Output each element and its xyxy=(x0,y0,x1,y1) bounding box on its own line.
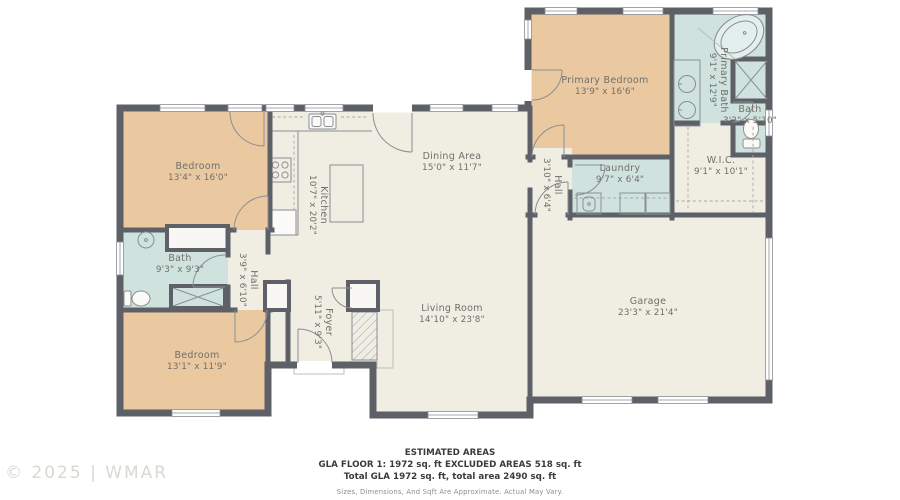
room-label-laundry: Laundry9'7" x 6'4" xyxy=(596,163,644,187)
room-label-primary-bath: Primary Bath9'1" x 12'9" xyxy=(705,47,729,112)
front-door-opening xyxy=(297,361,332,369)
room-label-kitchen: Kitchen10'7" x 20'2" xyxy=(305,175,329,235)
room-label-bedroom-upper: Bedroom13'4" x 16'0" xyxy=(168,161,228,185)
room-label-primary-bedroom: Primary Bedroom13'9" x 16'6" xyxy=(561,75,648,99)
window xyxy=(305,105,343,112)
room-label-hall-right: Hall3'10" x 6'4" xyxy=(539,158,563,212)
garage-window-band xyxy=(766,238,773,380)
room-label-garage: Garage23'3" x 21'4" xyxy=(618,296,678,320)
room-label-bedroom-lower: Bedroom13'1" x 11'9" xyxy=(167,350,227,374)
window xyxy=(713,8,758,15)
room-label-hall-left: Hall3'9" x 6'10" xyxy=(235,253,259,307)
exterior-patch xyxy=(266,366,372,415)
watermark: © 2025 | WMAR xyxy=(5,463,168,483)
window xyxy=(266,105,294,112)
back-door-opening xyxy=(373,104,412,113)
disclaimer-text: Sizes, Dimensions, And Sqft Are Approxim… xyxy=(0,488,900,498)
foyer-closet-west xyxy=(265,282,289,310)
room-label-wic: W.I.C.9'1" x 10'1" xyxy=(694,155,748,179)
window xyxy=(492,105,518,112)
window xyxy=(117,242,124,275)
room-label-bath-2: Bath3'2" x 5'10" xyxy=(723,104,777,128)
window xyxy=(428,412,478,419)
room-label-foyer: Foyer5'11" x 9'3" xyxy=(310,295,334,349)
window xyxy=(545,8,577,15)
window xyxy=(160,105,205,112)
window xyxy=(430,105,463,112)
window xyxy=(228,105,262,112)
room-label-bath-left: Bath9'3" x 9'3" xyxy=(156,253,204,277)
room-label-living: Living Room14'10" x 23'8" xyxy=(419,303,485,327)
floorplan-page: Primary Bedroom13'9" x 16'6" Primary Bat… xyxy=(0,0,900,500)
estimated-areas-title: ESTIMATED AREAS xyxy=(0,447,900,459)
primary-door-opening xyxy=(525,70,532,101)
garage-door xyxy=(582,397,632,404)
toilet xyxy=(124,291,150,306)
garage-door xyxy=(658,397,708,404)
window xyxy=(623,8,663,15)
staircase xyxy=(352,312,377,360)
floorplan-drawing xyxy=(0,0,900,500)
room-label-dining: Dining Area15'0" x 11'7" xyxy=(422,151,482,175)
window xyxy=(172,410,220,417)
window xyxy=(525,20,532,39)
bedroom-upper-closet xyxy=(167,226,228,250)
foyer-closet-east xyxy=(348,282,378,310)
